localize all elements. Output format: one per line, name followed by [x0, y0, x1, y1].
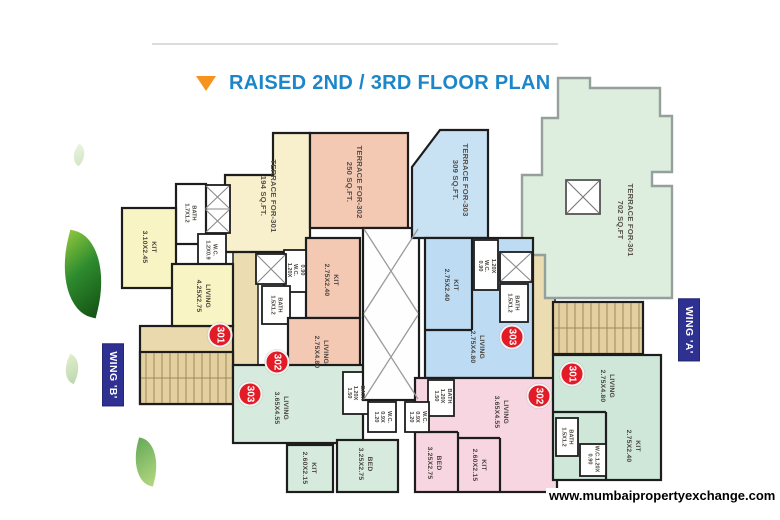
- room-label-wingb-kit-303: KIT 2.60X2.15: [299, 452, 317, 485]
- room-label-wingb-wc-301: W.C. 1.2X0.9: [204, 240, 217, 259]
- room-label-winga-living-302: LIVING 3.65X4.55: [491, 396, 509, 429]
- room-label-wingb-kit-302: KIT 2.75X2.40: [321, 264, 339, 297]
- room-label-winga-wc-303: 1.20X W.C. 0.90: [476, 259, 496, 274]
- room-label-winga-bath-302: BATH 1.20X 1.50: [432, 388, 452, 403]
- page-title-row: RAISED 2ND / 3RD FLOOR PLAN: [196, 72, 550, 95]
- room-label-winga-kit-303: KIT 2.75X2.40: [441, 269, 459, 302]
- unit-badge-wingb-303: 303: [238, 382, 263, 407]
- unit-badge-winga-303: 303: [500, 325, 525, 350]
- room-label-wingb-wc-302: 0.90 W.C. 1.20X: [285, 263, 305, 278]
- room-label-winga-living-303: LIVING 2.75X4.80: [467, 331, 485, 364]
- page-title: RAISED 2ND / 3RD FLOOR PLAN: [229, 72, 550, 95]
- room-label-wingb-living-303: LIVING 3.65X4.55: [271, 392, 289, 425]
- room-label-winga-kit-302: KIT 2.60X2.15: [469, 449, 487, 482]
- unit-badge-wingb-302: 302: [265, 350, 290, 375]
- room-label-winga-bath-303: BATH 1.5X1.2: [506, 293, 519, 312]
- floor-plan-page: RAISED 2ND / 3RD FLOOR PLAN: [0, 0, 780, 520]
- room-label-winga-living-301: LIVING 2.75X4.80: [597, 370, 615, 403]
- room-label-winga-bed-302: BED 3.25X2.75: [424, 447, 442, 480]
- room-label-wingb-kit-301: KIT 3.10X2.45: [139, 231, 157, 264]
- room-label-winga-wc-301: W.C.1.20X 0.90: [586, 446, 599, 473]
- unit-badge-winga-302: 302: [527, 384, 552, 409]
- room-label-wingb-bath-303: BATH 1.20X 1.50: [345, 385, 365, 400]
- room-label-wingb-bath-302: BATH 1.5X1.2: [269, 295, 282, 314]
- room-label-winga-bath-301: BATH 1.5X1.2: [560, 427, 573, 446]
- wingb-corridor: [233, 252, 258, 365]
- room-label-wingb-wc-303: W.C. 0.9X 1.20: [372, 411, 392, 423]
- central-shaft: [363, 228, 419, 400]
- watermark-url: www.mumbaipropertyexchange.com: [546, 488, 778, 503]
- room-label-wingb-bed-303: BED 3.25X2.75: [355, 448, 373, 481]
- wing-b-badge: WING 'B': [102, 343, 124, 406]
- unit-badge-wingb-301: 301: [208, 323, 233, 348]
- room-label-wingb-terrace-302: TERRACE FOR-302 250 SQ.FT.: [344, 145, 364, 218]
- room-label-winga-wc-302: W.C. 0.9X 1.20: [407, 411, 427, 423]
- room-label-wingb-terrace-301: TERRACE FOR-301 194 SQ.FT.: [258, 159, 278, 232]
- room-label-wingb-bath-301: BATH 1.7X1.2: [183, 203, 196, 222]
- room-label-winga-terrace-301: TERRACE FOR-301 702 SQ.FT: [615, 183, 635, 256]
- room-label-winga-kit-301: KIT 2.75X2.40: [623, 430, 641, 463]
- wing-a-badge: WING 'A': [678, 298, 700, 361]
- triangle-down-icon: [196, 76, 216, 91]
- unit-badge-winga-301: 301: [560, 362, 585, 387]
- room-label-winga-terrace-303: TERRACE FOR-303 309 SQ.FT.: [450, 143, 470, 216]
- room-label-wingb-living-302: LIVING 2.75X4.80: [311, 336, 329, 369]
- room-label-wingb-living-301: LIVING 4.25X2.75: [193, 280, 211, 313]
